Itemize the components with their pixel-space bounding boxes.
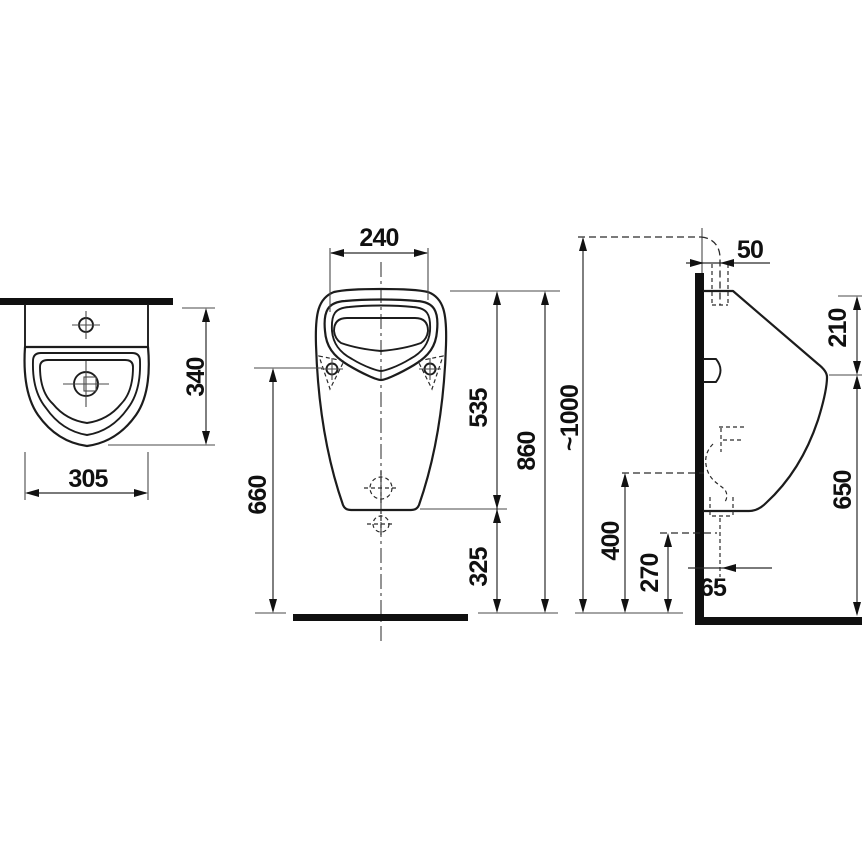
arrow-up-icon: [541, 291, 549, 305]
dim-860-label: 860: [513, 431, 541, 470]
arrow-left-icon: [720, 259, 734, 267]
arrow-up-icon: [493, 509, 501, 523]
arrow-down-icon: [541, 599, 549, 613]
trap-channel: [719, 427, 747, 452]
arrow-up-icon: [269, 368, 277, 382]
side-view: 50 210 650 400 27: [578, 228, 862, 625]
arrow-down-icon: [269, 599, 277, 613]
arrow-up-icon: [853, 296, 861, 310]
dimension-340: 340: [108, 308, 215, 445]
arrow-down-icon: [853, 361, 861, 375]
arrow-right-icon: [134, 489, 148, 497]
arrow-up-icon: [579, 237, 587, 251]
arrow-up-icon: [202, 308, 210, 322]
dimension-270: 270: [636, 533, 672, 613]
dimension-400: 400: [597, 473, 629, 613]
dim-305-label: 305: [68, 465, 108, 493]
dimension-535-325: 535 325: [465, 291, 501, 613]
spreader-nozzle: [704, 359, 721, 382]
dim-400-label: 400: [597, 521, 625, 560]
mount-hole-right-cross: [419, 358, 441, 380]
inlet-cross: [72, 311, 100, 339]
arrow-up-icon: [493, 291, 501, 305]
arrow-right-icon: [414, 249, 428, 257]
dim-1000-label: ~1000: [556, 385, 584, 451]
arrow-left-icon: [722, 564, 736, 572]
arrow-down-icon: [493, 599, 501, 613]
floor-section-side: [695, 617, 862, 625]
dimension-650: 650: [829, 375, 861, 616]
hidden-drain-cross: [367, 510, 395, 538]
arrow-down-icon: [202, 431, 210, 445]
dimension-1000: ~1000: [556, 237, 587, 613]
dim-650-label: 650: [829, 470, 857, 509]
wall-section-side: [695, 273, 704, 625]
dim-270-label: 270: [636, 553, 664, 592]
drain-cross: [63, 361, 109, 407]
arrow-up-icon: [664, 533, 672, 547]
mount-hole-left-cross: [321, 358, 343, 380]
dimension-210: 210: [824, 296, 861, 375]
arrow-down-icon: [621, 599, 629, 613]
hidden-inlet-pipe: [578, 237, 728, 305]
floor-section-front: [293, 614, 468, 621]
dim-535-label: 535: [465, 387, 493, 427]
trap-curve: [706, 444, 727, 503]
side-profile-outline: [704, 291, 827, 511]
arrow-left-icon: [330, 249, 344, 257]
dim-210-label: 210: [824, 308, 852, 347]
arrow-left-icon: [25, 489, 39, 497]
dim-340-label: 340: [182, 357, 210, 396]
arrow-up-icon: [621, 473, 629, 487]
arrow-down-icon: [493, 495, 501, 509]
dim-65-label: 65: [700, 574, 727, 602]
drawing-page: 340 305: [0, 0, 868, 868]
front-view: 240 660 535 325 860: [244, 224, 683, 645]
hidden-trap-outline: [706, 427, 747, 577]
dimension-860: 860: [513, 291, 549, 613]
arrow-up-icon: [853, 375, 861, 389]
dimension-305: 305: [25, 452, 148, 500]
arrow-down-icon: [664, 599, 672, 613]
dim-240-label: 240: [359, 224, 398, 252]
dim-325-label: 325: [465, 546, 493, 586]
outlet-stub: [710, 497, 733, 516]
arrow-down-icon: [853, 602, 861, 616]
dim-660-label: 660: [244, 475, 272, 514]
drain-crosshair-icon: [63, 361, 109, 407]
inlet-crosshair-icon: [72, 311, 100, 339]
technical-drawing-canvas: 340 305: [0, 0, 868, 868]
dim-50-label: 50: [737, 236, 763, 264]
top-view: 340 305: [0, 298, 215, 500]
dim-240-extensions: [330, 248, 428, 312]
wall-section-plan: [0, 298, 173, 305]
dimension-660: 660: [244, 368, 322, 613]
arrow-down-icon: [579, 599, 587, 613]
dimension-50: 50: [686, 236, 770, 267]
